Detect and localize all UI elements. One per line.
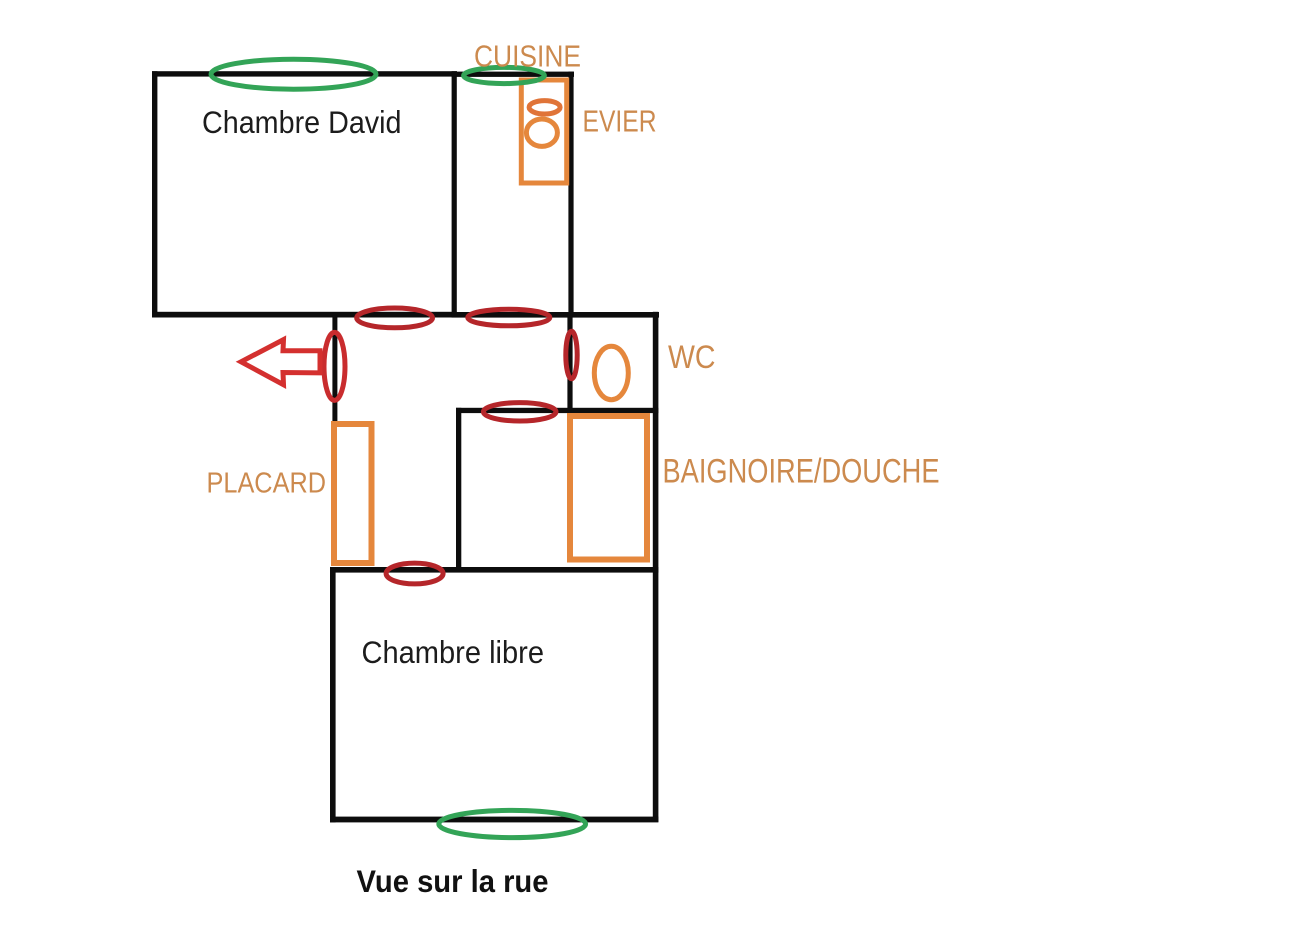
svg-text:EVIER: EVIER xyxy=(583,103,657,138)
svg-text:Chambre David: Chambre David xyxy=(202,104,402,140)
svg-text:WC: WC xyxy=(668,339,716,375)
svg-text:Vue sur la rue: Vue sur la rue xyxy=(357,863,549,899)
svg-text:PLACARD: PLACARD xyxy=(207,468,327,500)
svg-text:CUISINE: CUISINE xyxy=(474,39,581,74)
svg-text:Chambre libre: Chambre libre xyxy=(362,634,545,670)
svg-text:BAIGNOIRE/DOUCHE: BAIGNOIRE/DOUCHE xyxy=(663,453,940,491)
